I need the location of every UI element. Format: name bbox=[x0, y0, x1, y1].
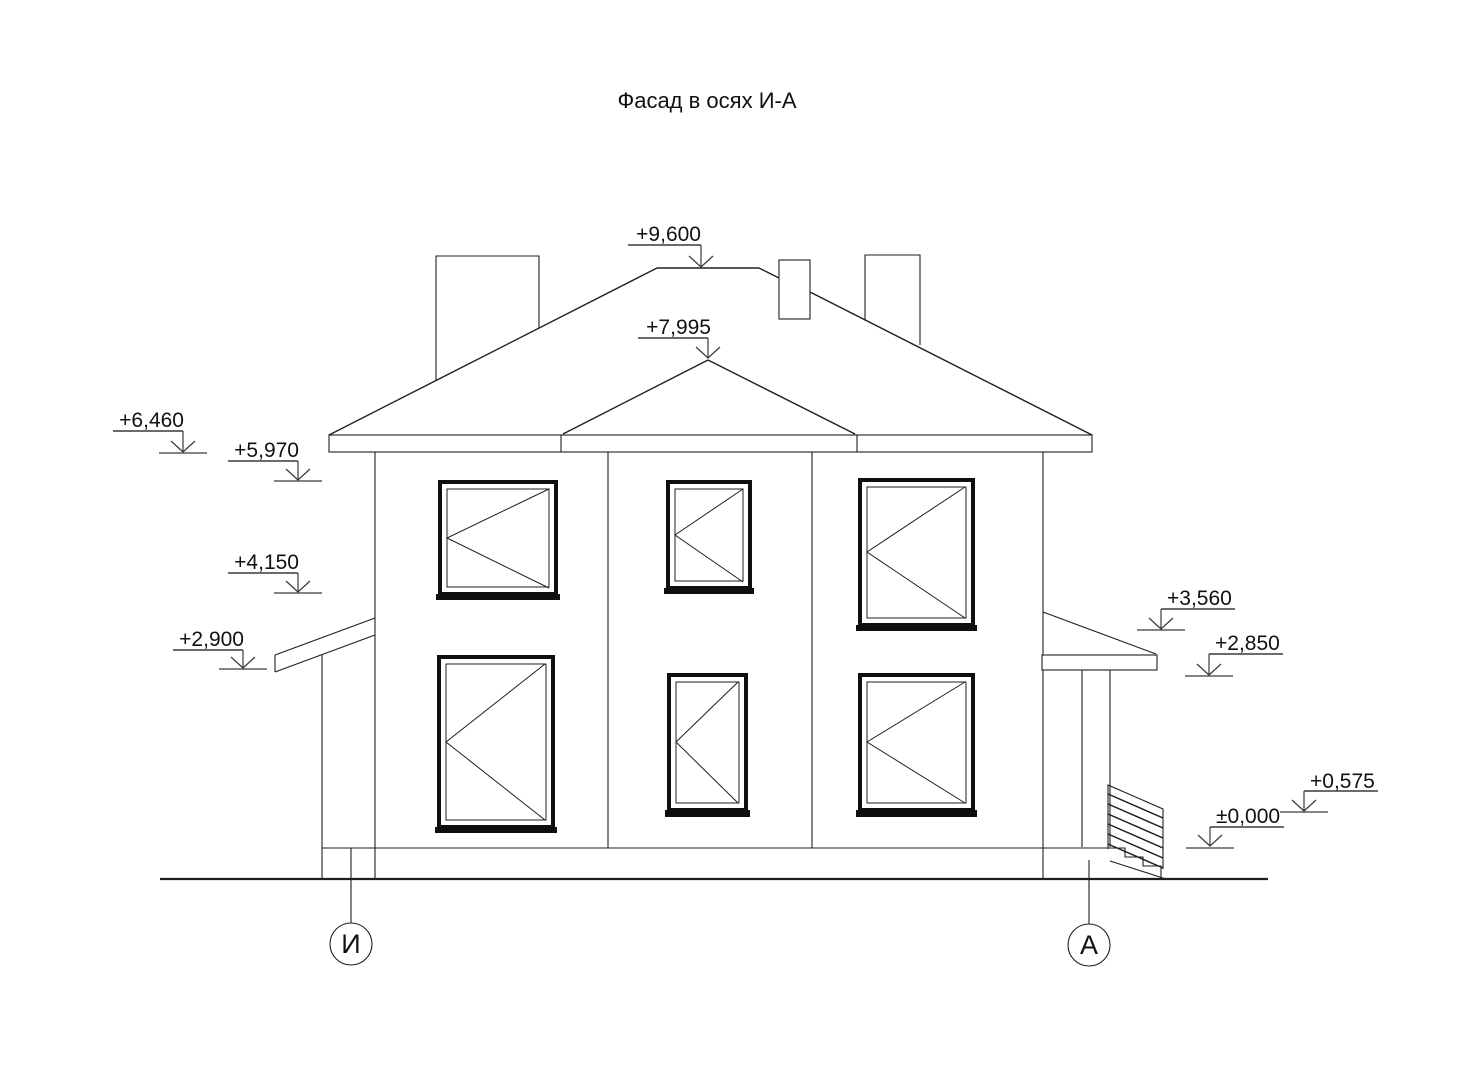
window-outer-frame bbox=[440, 482, 556, 594]
axis-marker-i: И bbox=[330, 848, 372, 965]
casement-symbol bbox=[676, 682, 738, 803]
railing-hatch-line bbox=[1108, 804, 1163, 828]
side-canopy bbox=[275, 618, 375, 672]
elevation-mark-ridge: +9,600 bbox=[628, 223, 713, 267]
elevation-mark-side-canopy: +2,900 bbox=[173, 628, 267, 669]
axis-label: И bbox=[341, 929, 360, 959]
window-1f-middle bbox=[665, 675, 750, 817]
window-sill bbox=[436, 594, 560, 600]
window-inner-frame bbox=[867, 487, 966, 618]
window-outer-frame bbox=[860, 675, 973, 810]
porch bbox=[1042, 612, 1157, 847]
eaves-fascia bbox=[329, 435, 1092, 452]
roof-right-slope-lower bbox=[810, 292, 1092, 435]
elevation-value: +5,970 bbox=[234, 439, 299, 462]
elevation-value: +0,575 bbox=[1310, 770, 1375, 793]
elevation-mark-floor2-sill: +4,150 bbox=[228, 551, 322, 593]
window-sill bbox=[856, 810, 977, 817]
entrance-stairs bbox=[1108, 785, 1166, 879]
elevation-mark-porch-ceiling: +2,850 bbox=[1185, 632, 1283, 676]
casement-symbol bbox=[446, 664, 545, 820]
chimney-right bbox=[865, 255, 920, 345]
stair-stringer bbox=[1110, 861, 1166, 879]
elevation-value: +6,460 bbox=[119, 409, 184, 432]
elevation-value: +7,995 bbox=[646, 316, 711, 339]
elevation-value: +2,900 bbox=[179, 628, 244, 651]
elevation-value: +2,850 bbox=[1215, 632, 1280, 655]
window-sill bbox=[856, 625, 977, 631]
drawing-title: Фасад в осях И-А bbox=[617, 88, 796, 113]
porch-roof-slab bbox=[1042, 655, 1157, 670]
axis-label: А bbox=[1080, 930, 1098, 960]
railing-hatch-line bbox=[1108, 844, 1163, 868]
railing-hatch-line bbox=[1108, 814, 1163, 838]
window-inner-frame bbox=[676, 682, 739, 803]
casement-symbol bbox=[447, 489, 549, 588]
bay-hip-left-slope bbox=[563, 360, 708, 434]
window-2f-right bbox=[856, 480, 977, 631]
window-sill bbox=[665, 810, 750, 817]
elevation-mark-bay-hip: +7,995 bbox=[638, 316, 720, 358]
elevation-value: +4,150 bbox=[234, 551, 299, 574]
window-2f-middle bbox=[664, 482, 754, 594]
porch-roof-slope bbox=[1043, 612, 1156, 654]
canopy-top-edge bbox=[275, 618, 375, 655]
window-outer-frame bbox=[439, 657, 553, 827]
facade-drawing: Фасад в осях И-А bbox=[0, 0, 1472, 1080]
window-inner-frame bbox=[446, 664, 546, 820]
railing-hatch-line bbox=[1108, 824, 1163, 848]
casement-symbol bbox=[675, 489, 743, 582]
window-2f-left bbox=[436, 482, 560, 600]
elevation-value: +3,560 bbox=[1167, 587, 1232, 610]
elevation-mark-porch-roof: +3,560 bbox=[1137, 587, 1235, 630]
sheet: Фасад в осях И-А bbox=[0, 0, 1472, 1080]
chimney-small bbox=[779, 260, 810, 319]
window-inner-frame bbox=[447, 489, 549, 587]
window-outer-frame bbox=[668, 482, 750, 588]
roof bbox=[329, 268, 1092, 452]
roof-right-slope-upper bbox=[759, 268, 779, 278]
elevation-value: ±0,000 bbox=[1216, 805, 1280, 828]
casement-symbol bbox=[867, 682, 965, 803]
elevation-mark-eaves: +6,460 bbox=[113, 409, 207, 453]
window-1f-left bbox=[435, 657, 557, 833]
window-1f-right bbox=[856, 675, 977, 817]
window-inner-frame bbox=[675, 489, 743, 581]
window-outer-frame bbox=[860, 480, 973, 625]
window-inner-frame bbox=[867, 682, 966, 803]
elevation-mark-ground-floor: ±0,000 bbox=[1186, 805, 1284, 848]
elevation-mark-wall-top: +5,970 bbox=[228, 439, 322, 481]
casement-symbol bbox=[867, 487, 965, 618]
window-sill bbox=[435, 827, 557, 833]
stair-railing bbox=[1108, 785, 1163, 869]
windows bbox=[435, 480, 977, 833]
canopy-bottom-edge bbox=[275, 635, 375, 672]
railing-hatch-line bbox=[1108, 834, 1163, 858]
window-sill bbox=[664, 588, 754, 594]
window-outer-frame bbox=[669, 675, 746, 810]
bay-hip-right-slope bbox=[708, 360, 855, 434]
axis-marker-a: А bbox=[1068, 860, 1110, 966]
elevation-mark-entrance-landing: +0,575 bbox=[1280, 770, 1378, 812]
elevation-value: +9,600 bbox=[636, 223, 701, 246]
axis-markers: И А bbox=[330, 848, 1110, 966]
chimney-left bbox=[436, 256, 539, 380]
roof-left-slope bbox=[329, 268, 657, 435]
